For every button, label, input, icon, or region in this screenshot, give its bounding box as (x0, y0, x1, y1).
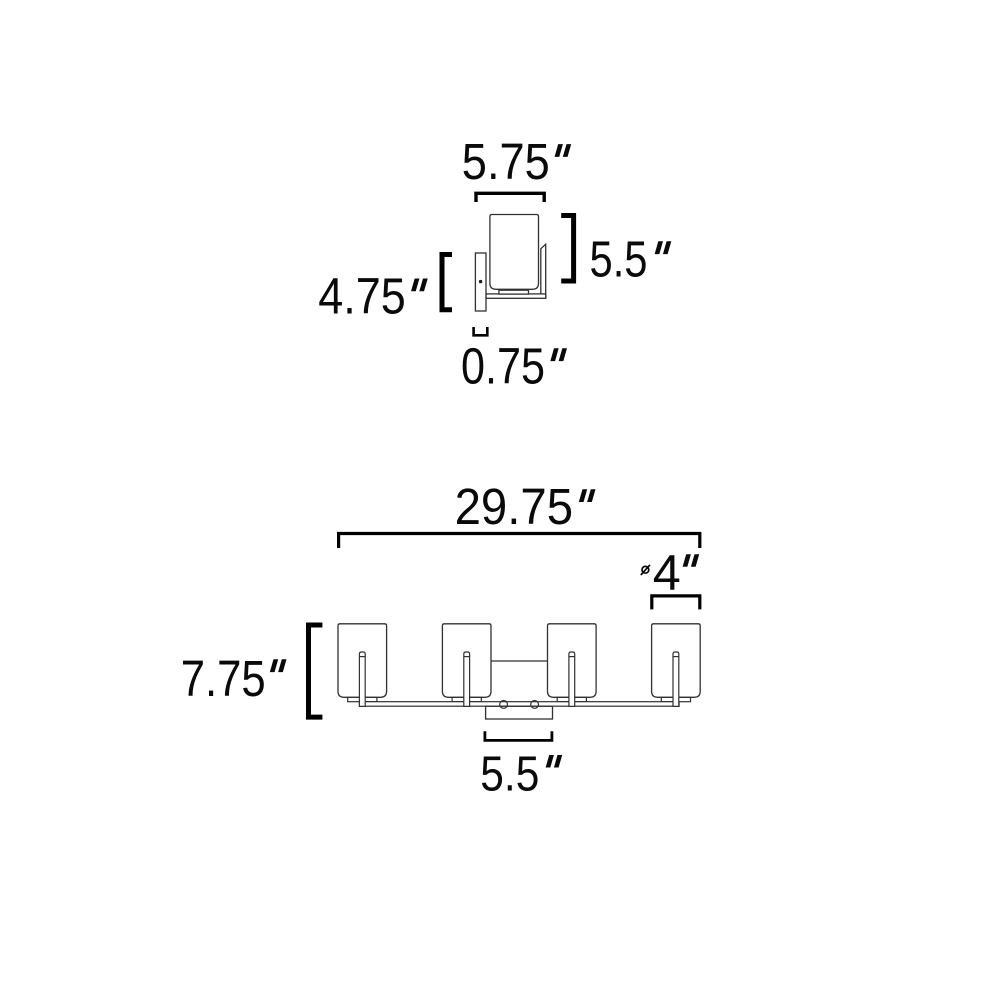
svg-text:4: 4 (653, 545, 681, 601)
svg-text:29.75: 29.75 (455, 478, 573, 535)
svg-text:0.75: 0.75 (461, 337, 545, 394)
svg-text:4.75: 4.75 (318, 268, 406, 325)
svg-text:7.75: 7.75 (181, 650, 266, 707)
svg-text:5.5: 5.5 (480, 746, 539, 801)
svg-text:5.5: 5.5 (590, 231, 648, 288)
svg-text:5.75: 5.75 (462, 133, 550, 190)
